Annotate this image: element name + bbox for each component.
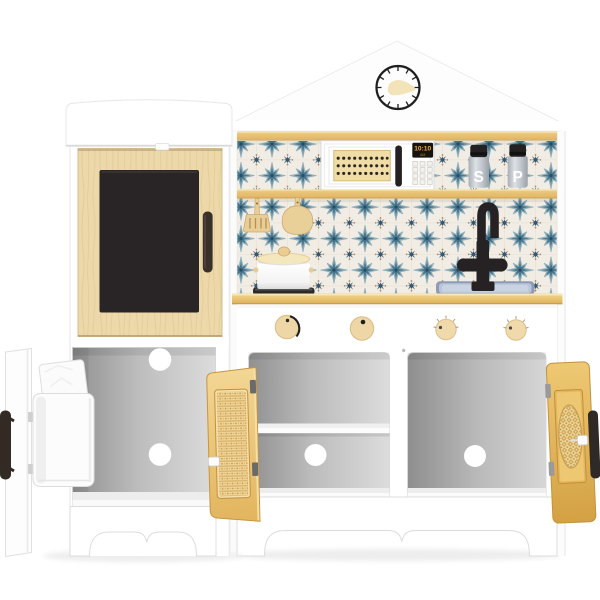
svg-text:AM: AM bbox=[420, 153, 425, 157]
svg-text:S: S bbox=[474, 169, 484, 186]
svg-text:P: P bbox=[513, 169, 523, 186]
svg-text:10:10: 10:10 bbox=[414, 146, 431, 153]
